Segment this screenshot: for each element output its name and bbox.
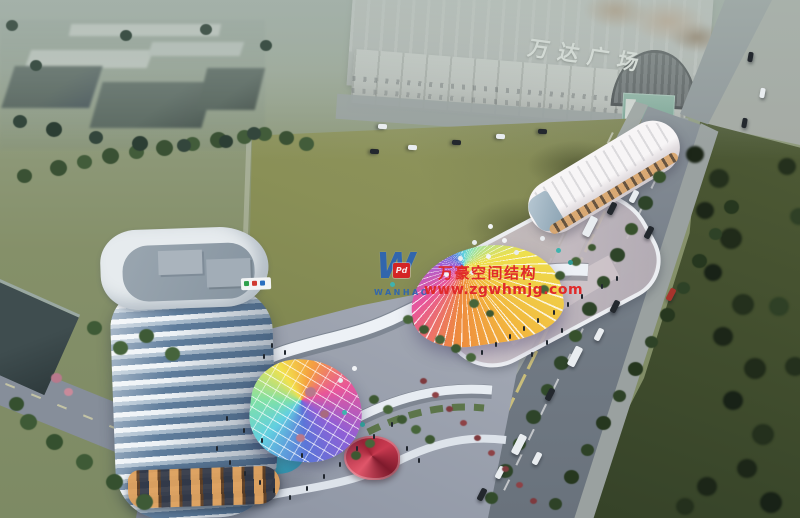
watermark-logo-name: WANHAO	[374, 288, 430, 297]
vehicle-car	[378, 124, 387, 130]
tower-rooftop	[99, 225, 270, 311]
company-watermark: W Pd WANHAO 万豪空间结构 www.zgwhmjg.com	[376, 252, 611, 307]
tower-logo-sign	[241, 277, 271, 290]
vehicle-car	[496, 134, 505, 140]
rooftop-deck	[122, 242, 256, 303]
tower-lit-storefront	[127, 465, 280, 508]
pedestrians	[0, 0, 2, 5]
aerial-rendering-scene: 万达广场	[0, 0, 800, 518]
vehicle-car	[408, 145, 417, 151]
penthouse-box	[158, 250, 203, 276]
vehicle-car	[538, 129, 547, 135]
watermark-website: www.zgwhmjg.com	[424, 282, 583, 298]
red-led-corner-screen	[344, 436, 400, 480]
watermark-logo-badge: Pd	[393, 263, 410, 278]
vehicle-car	[370, 149, 379, 155]
logo-color-dots	[244, 281, 249, 286]
vehicle-car	[452, 140, 461, 146]
watermark-company-name: 万豪空间结构	[438, 262, 537, 283]
